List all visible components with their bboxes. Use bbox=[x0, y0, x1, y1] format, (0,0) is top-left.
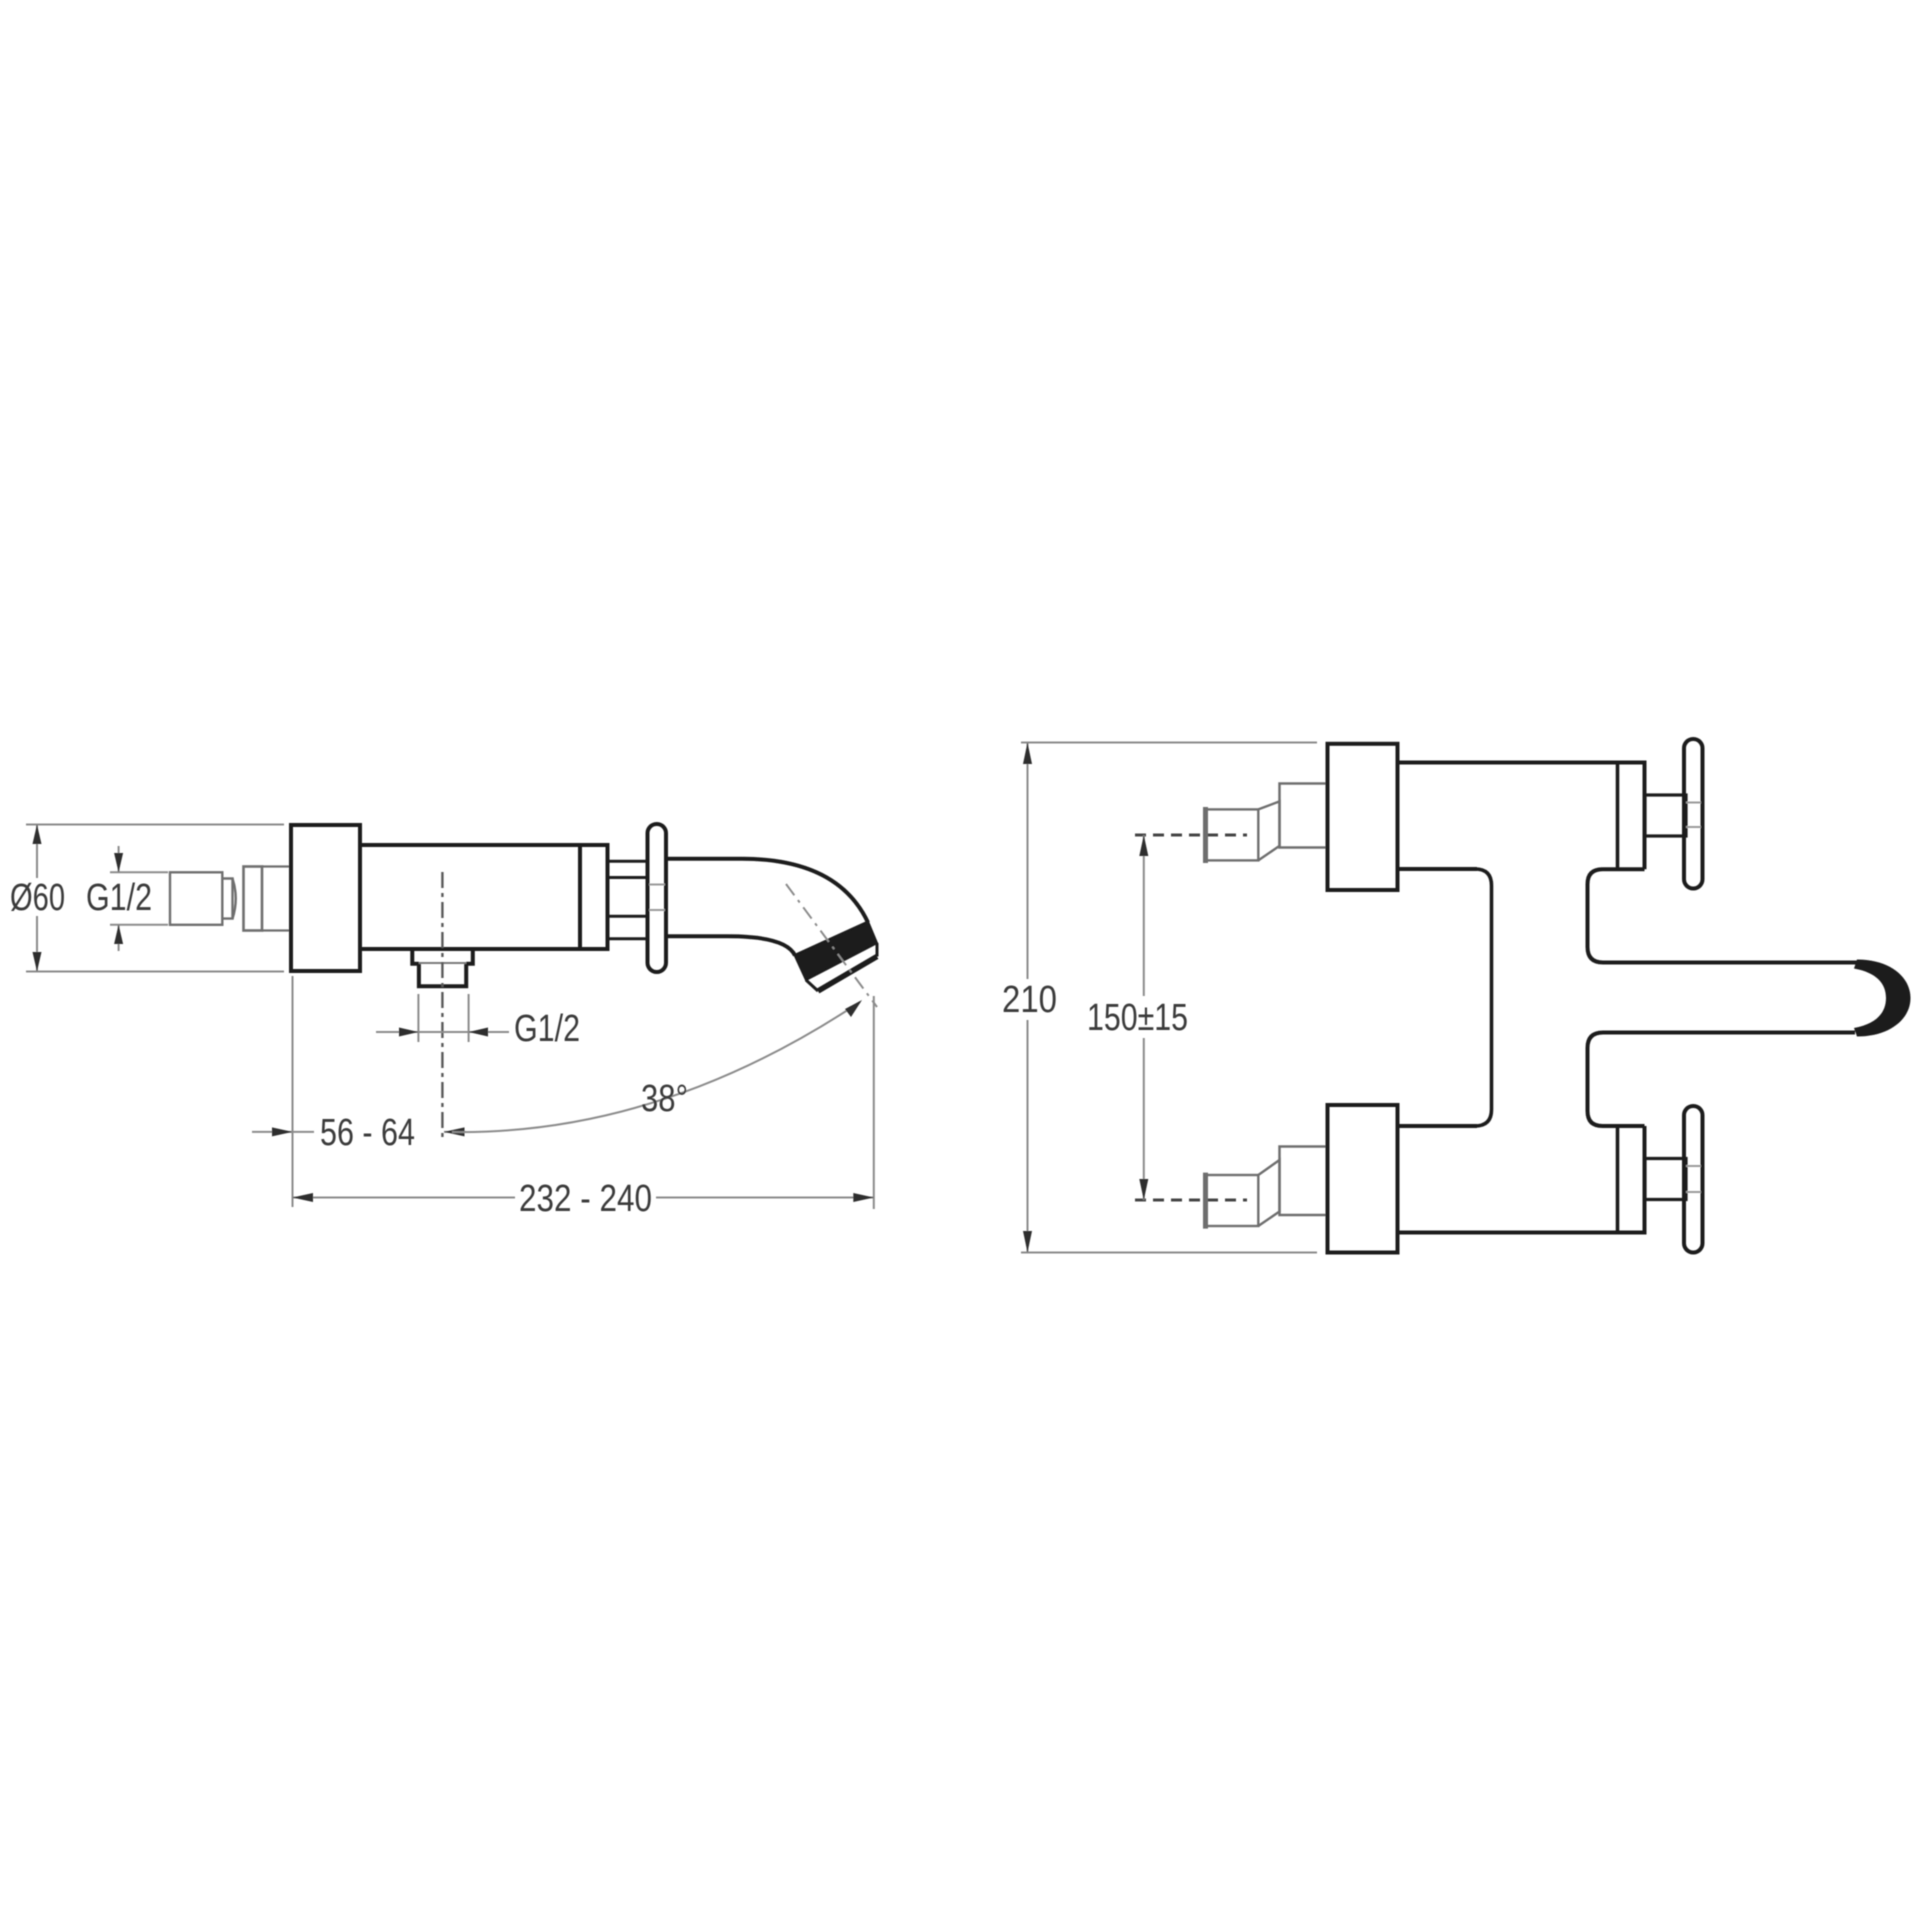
svg-text:38°: 38° bbox=[641, 1078, 688, 1120]
svg-text:150±15: 150±15 bbox=[1087, 997, 1188, 1039]
svg-text:G1/2: G1/2 bbox=[514, 1008, 580, 1050]
svg-text:210: 210 bbox=[1002, 979, 1057, 1021]
svg-text:G1/2: G1/2 bbox=[86, 877, 152, 919]
svg-text:232 - 240: 232 - 240 bbox=[519, 1178, 652, 1220]
svg-text:Ø60: Ø60 bbox=[10, 877, 65, 919]
svg-text:56 - 64: 56 - 64 bbox=[320, 1112, 415, 1154]
